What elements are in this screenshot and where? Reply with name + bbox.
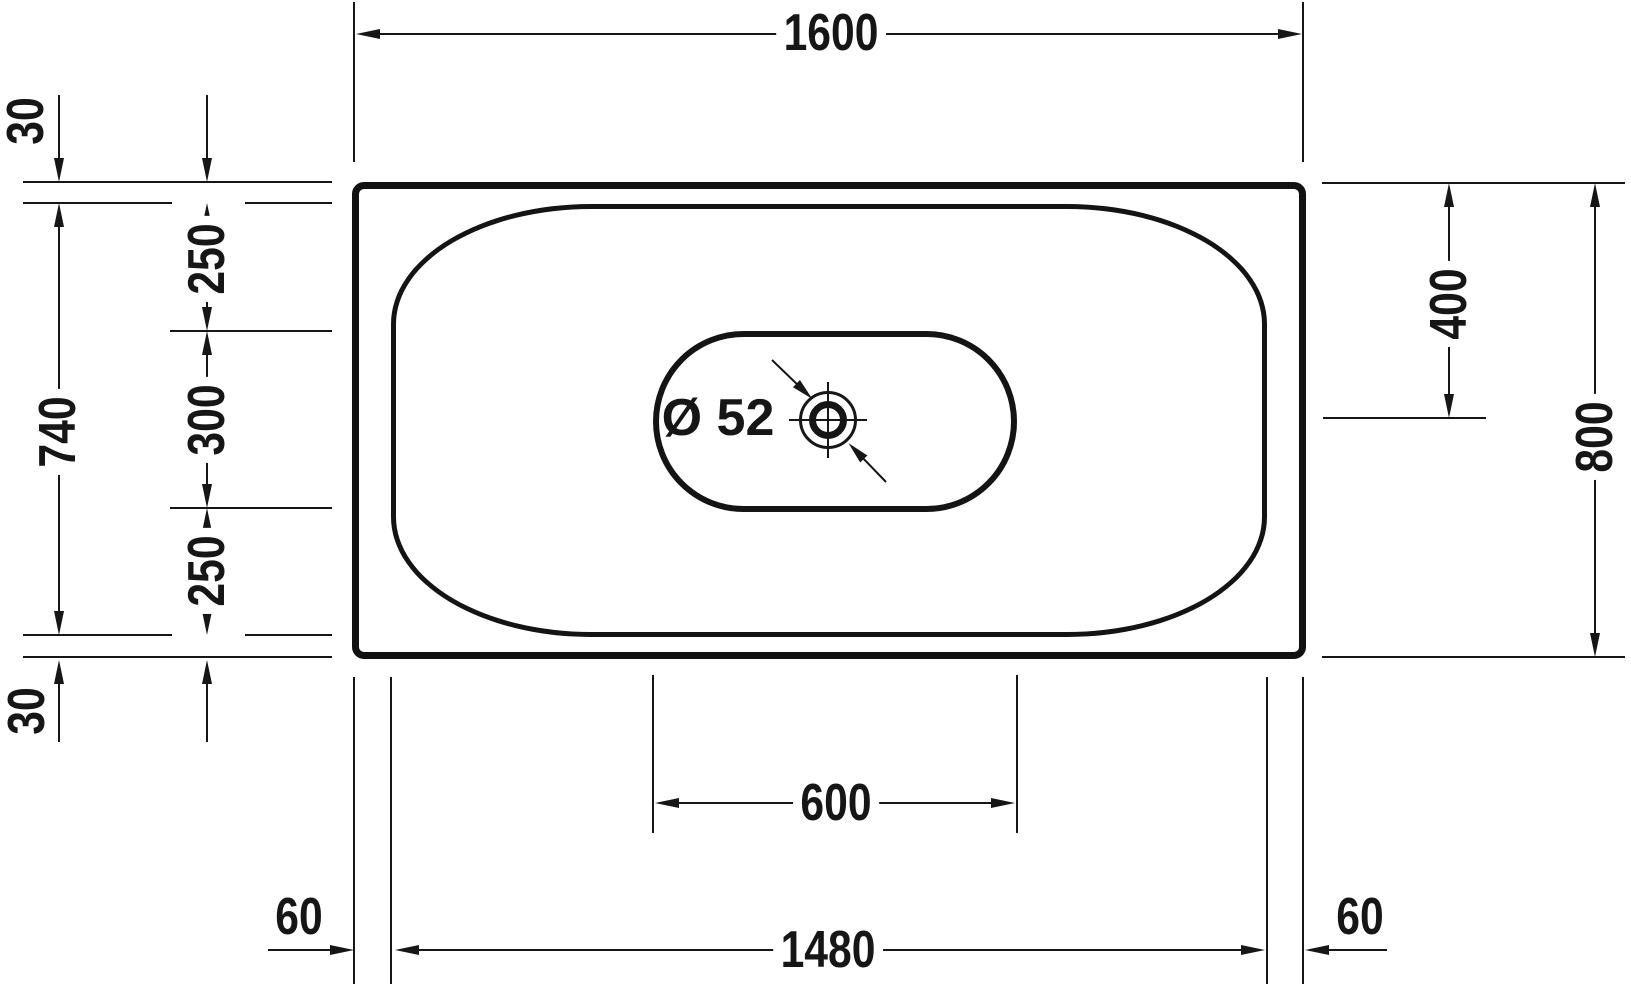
extension-line-left-edge-top <box>353 2 355 162</box>
arrowhead-down-icon <box>1590 633 1600 657</box>
dim-label-rim-offset-right: 60 <box>1336 891 1383 943</box>
extension-line-inner-bottom-b <box>245 634 332 636</box>
extension-line-right-center <box>1323 417 1486 419</box>
extension-line-right-bottom <box>1322 656 1625 658</box>
extension-line-right-edge-bottom <box>1302 677 1304 984</box>
dim-label-rim-offset-top: 30 <box>0 97 52 144</box>
dim-label-drain-zone-width: 300 <box>179 377 235 463</box>
dimension-line-rim-top-b <box>206 95 208 158</box>
technical-drawing-canvas: 1600 30 740 250 300 250 30 400 80 <box>0 0 1631 986</box>
dim-label-overall-length: 1600 <box>776 5 886 61</box>
extension-line-inner-top-b <box>245 202 332 204</box>
arrowhead-left-icon <box>395 945 419 955</box>
dimension-line-rim-bottom-a <box>58 684 60 742</box>
extension-line-outer-top <box>23 181 332 183</box>
dimension-line-rim-offset-right <box>1327 949 1387 951</box>
dim-label-basin-bottom-segment: 250 <box>179 528 235 614</box>
dim-label-basin-width: 740 <box>30 389 86 475</box>
arrowhead-down-icon <box>202 484 212 508</box>
arrowhead-down-icon <box>202 158 212 182</box>
dim-label-basin-length: 1480 <box>773 922 883 978</box>
arrowhead-right-icon <box>991 798 1015 808</box>
arrowhead-up-icon <box>202 331 212 355</box>
extension-line-oval-left <box>652 675 654 833</box>
extension-line-inner-top-a <box>23 202 172 204</box>
dim-label-overall-width: 800 <box>1567 394 1623 480</box>
extension-line-right-edge-top <box>1302 2 1304 162</box>
arrowhead-left-icon <box>356 29 380 39</box>
arrowhead-right-icon <box>1241 945 1265 955</box>
arrowhead-up-icon <box>202 660 212 684</box>
dim-label-rim-offset-bottom: 30 <box>1 687 53 734</box>
dim-label-basin-top-segment: 250 <box>179 216 235 302</box>
extension-line-basin-right <box>1266 677 1268 984</box>
arrowhead-up-icon <box>1590 183 1600 207</box>
arrowhead-down-icon <box>54 158 64 182</box>
dim-label-drain-diameter: Ø 52 <box>662 392 775 444</box>
dim-label-center-line-offset: 400 <box>1421 261 1477 347</box>
drain-crosshair-vertical <box>827 382 829 458</box>
extension-line-oval-top <box>170 330 332 332</box>
arrowhead-up-icon <box>1444 183 1454 207</box>
extension-line-basin-left <box>390 677 392 984</box>
extension-line-oval-bottom <box>170 507 332 509</box>
arrowhead-right-icon <box>330 945 354 955</box>
arrowhead-up-icon <box>54 660 64 684</box>
dimension-line-rim-bottom-b <box>206 684 208 742</box>
extension-line-oval-right <box>1016 675 1018 833</box>
arrowhead-right-icon <box>1278 29 1302 39</box>
arrowhead-down-icon <box>202 611 212 635</box>
arrowhead-down-icon <box>202 307 212 331</box>
extension-line-outer-bottom <box>23 656 332 658</box>
arrowhead-left-icon <box>1305 945 1329 955</box>
dim-label-rim-offset-left: 60 <box>275 891 322 943</box>
arrowhead-down-icon <box>54 611 64 635</box>
arrowhead-left-icon <box>655 798 679 808</box>
dimension-line-rim-top-a <box>58 95 60 158</box>
dim-label-drain-zone-length: 600 <box>793 775 879 831</box>
arrowhead-up-icon <box>54 203 64 227</box>
extension-line-left-edge-bottom <box>353 677 355 984</box>
extension-line-right-top <box>1322 182 1625 184</box>
arrowhead-down-icon <box>1444 394 1454 418</box>
extension-line-inner-bottom-a <box>23 634 172 636</box>
dimension-line-rim-offset-left <box>268 949 330 951</box>
